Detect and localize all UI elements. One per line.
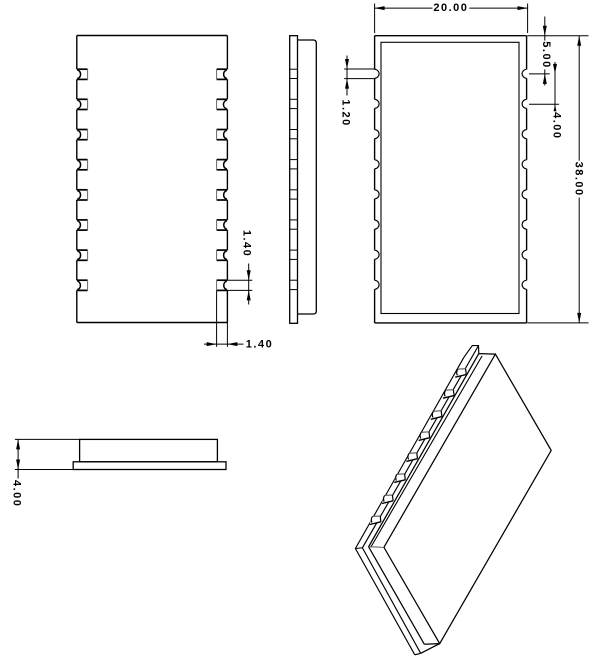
- svg-text:5.00: 5.00: [540, 41, 552, 68]
- svg-text:1.20: 1.20: [340, 99, 352, 126]
- svg-text:1.40: 1.40: [246, 339, 273, 351]
- svg-text:4.00: 4.00: [551, 112, 563, 139]
- svg-text:38.00: 38.00: [573, 162, 585, 197]
- svg-text:4.00: 4.00: [11, 480, 23, 507]
- svg-text:20.00: 20.00: [433, 2, 468, 14]
- svg-text:1.40: 1.40: [241, 230, 253, 257]
